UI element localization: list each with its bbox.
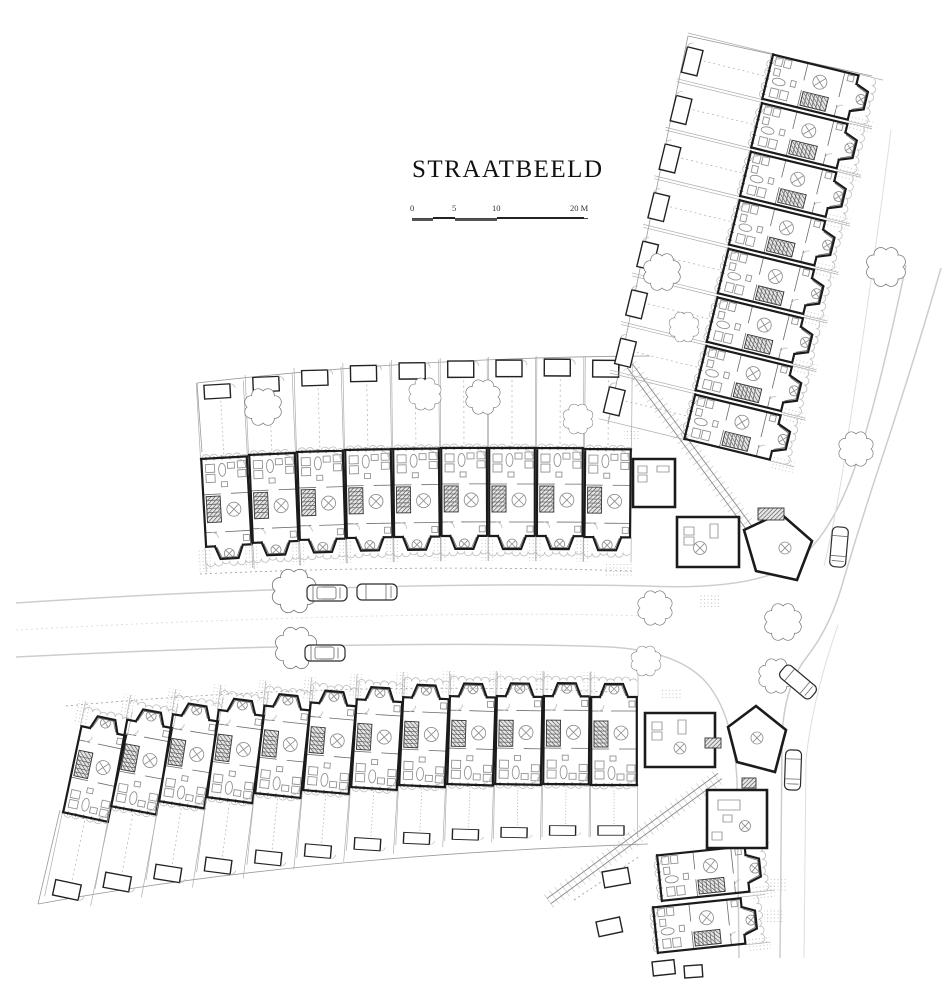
garden-shed <box>684 965 703 978</box>
page-title: STRAATBEELD <box>412 156 612 184</box>
stair-block <box>758 508 784 520</box>
stair-block <box>705 738 721 748</box>
paving-patch <box>660 688 682 700</box>
corner-building <box>707 790 767 848</box>
scale-label-10: 10 <box>492 203 501 213</box>
site-plan-page: STRAATBEELD 0 5 10 20 M <box>0 0 946 1000</box>
scale-label-0: 0 <box>410 203 414 213</box>
stair-block <box>742 778 756 788</box>
garden-shed <box>652 960 675 976</box>
scale-label-5: 5 <box>452 203 456 213</box>
paving-patch <box>698 594 720 607</box>
scale-label-20: 20 M <box>570 203 588 213</box>
car-icon <box>784 750 801 791</box>
paving-patch <box>764 908 784 922</box>
car-icon <box>829 526 848 567</box>
corner-building <box>677 517 739 567</box>
car-icon <box>357 584 397 600</box>
paving-patch <box>604 562 632 577</box>
scale-bar: 0 5 10 20 M <box>408 203 598 225</box>
scale-bar-rule <box>408 215 598 221</box>
site-plan-svg <box>0 0 946 1000</box>
car-icon <box>305 645 345 661</box>
car-icon <box>307 585 347 601</box>
